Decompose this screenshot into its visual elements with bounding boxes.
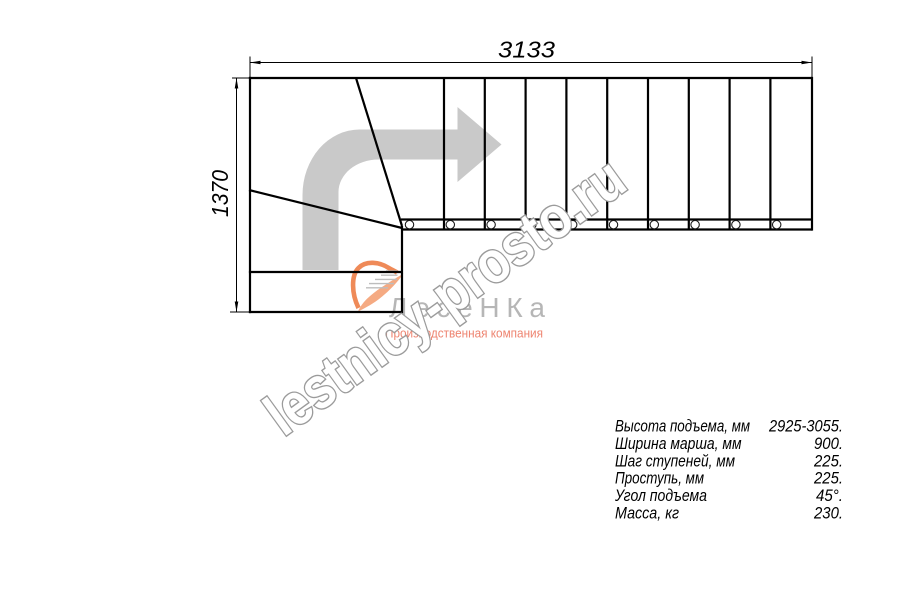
svg-text:1370: 1370 bbox=[207, 170, 233, 217]
svg-text:Высота подъема, мм: Высота подъема, мм bbox=[615, 416, 750, 435]
svg-text:Масса, кг: Масса, кг bbox=[615, 504, 679, 523]
svg-text:230.: 230. bbox=[813, 504, 843, 523]
svg-text:Проступь, мм: Проступь, мм bbox=[615, 469, 704, 488]
svg-text:Ширина марша, мм: Ширина марша, мм bbox=[615, 434, 742, 453]
svg-text:225.: 225. bbox=[813, 469, 843, 488]
svg-text:900.: 900. bbox=[814, 434, 843, 453]
svg-text:45°.: 45°. bbox=[816, 486, 843, 505]
svg-text:2925-3055.: 2925-3055. bbox=[768, 416, 843, 435]
svg-text:225.: 225. bbox=[813, 451, 843, 470]
svg-text:Шаг ступеней, мм: Шаг ступеней, мм bbox=[615, 451, 735, 470]
svg-text:Угол подъема: Угол подъема bbox=[614, 486, 707, 505]
svg-text:3133: 3133 bbox=[498, 37, 555, 63]
